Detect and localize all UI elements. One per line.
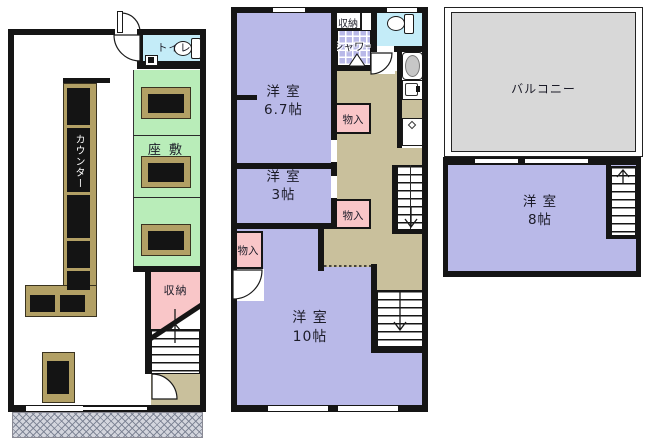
table-top (148, 231, 184, 250)
window (387, 7, 417, 13)
booth-divider (133, 197, 200, 198)
wall (443, 271, 641, 277)
window (268, 405, 328, 412)
wall (231, 405, 428, 412)
wall (200, 29, 206, 412)
wall (606, 236, 641, 239)
entrance-approach (12, 412, 203, 438)
closet-a-label: 物入 (336, 112, 370, 127)
door-opening (377, 46, 394, 52)
room-name: 洋 室 (236, 168, 331, 186)
stair-landing (377, 267, 423, 290)
wall (331, 66, 377, 71)
hallway-corridor (323, 229, 423, 267)
bathtub-icon (405, 55, 420, 77)
counter-surface (67, 241, 90, 268)
table-top (148, 163, 184, 182)
room-size: 3帖 (236, 186, 331, 204)
toilet-bowl-icon (387, 16, 405, 31)
window (525, 158, 588, 164)
hallway (402, 100, 423, 118)
room-name: 洋 室 (458, 193, 622, 211)
wall (392, 165, 397, 230)
wall (371, 347, 428, 353)
stairs-divider (410, 165, 411, 230)
entrance-door-leaf (117, 11, 123, 33)
room-size: 6.7帖 (236, 101, 331, 119)
room-size: 10帖 (235, 328, 385, 347)
balcony-label: バルコニー (451, 80, 636, 97)
storefront-sliding-door (83, 406, 147, 411)
door-opening (331, 140, 337, 162)
wall (636, 157, 641, 277)
counter-surface (30, 295, 55, 312)
wall (397, 52, 402, 148)
storage-label: 収納 (151, 282, 200, 298)
wall (8, 29, 115, 35)
toilet-sink-basin (148, 57, 154, 63)
counter-surface (67, 88, 90, 125)
wall-stub (318, 229, 324, 271)
wall (392, 229, 428, 234)
storage-label: 収納 (334, 15, 362, 30)
room-name: 洋 室 (235, 309, 385, 328)
counter-surface (67, 271, 90, 290)
zashiki-label: 座 敷 (133, 139, 199, 158)
toilet-tank-icon (404, 14, 414, 34)
stair-landing (151, 374, 200, 405)
hallway (397, 148, 423, 165)
wall (145, 266, 151, 374)
counter-label: カウンター (67, 129, 90, 193)
toilet-tank-icon (191, 38, 201, 59)
counter-surface (67, 195, 90, 238)
faucet-icon (416, 86, 420, 92)
window (273, 7, 305, 13)
wall (443, 157, 448, 277)
closet-c-label: 物入 (233, 243, 263, 258)
room-10-label: 洋 室 10帖 (235, 309, 385, 347)
room-size: 8帖 (458, 211, 622, 229)
door-opening (331, 176, 337, 198)
room-8-label: 洋 室 8帖 (458, 193, 622, 229)
toilet-label: トイレ (157, 43, 192, 54)
wall (133, 266, 206, 272)
room-3-label: 洋 室 3帖 (236, 168, 331, 204)
wall (231, 7, 237, 412)
window (338, 405, 398, 412)
wall (8, 29, 14, 412)
door-swing-area (233, 269, 264, 301)
room-6-7-label: 洋 室 6.7帖 (236, 83, 331, 119)
room-name: 洋 室 (236, 83, 331, 101)
table-top (148, 94, 184, 113)
floorplan-canvas: カウンター 収納 トイレ 座 敷 (0, 0, 662, 447)
window (26, 405, 83, 412)
window (475, 158, 518, 164)
wall (142, 29, 206, 35)
counter-surface (60, 295, 85, 312)
booth-divider (133, 135, 200, 136)
table-top (47, 361, 69, 394)
stairs-1f (151, 329, 200, 374)
closet-b-label: 物入 (336, 208, 370, 223)
